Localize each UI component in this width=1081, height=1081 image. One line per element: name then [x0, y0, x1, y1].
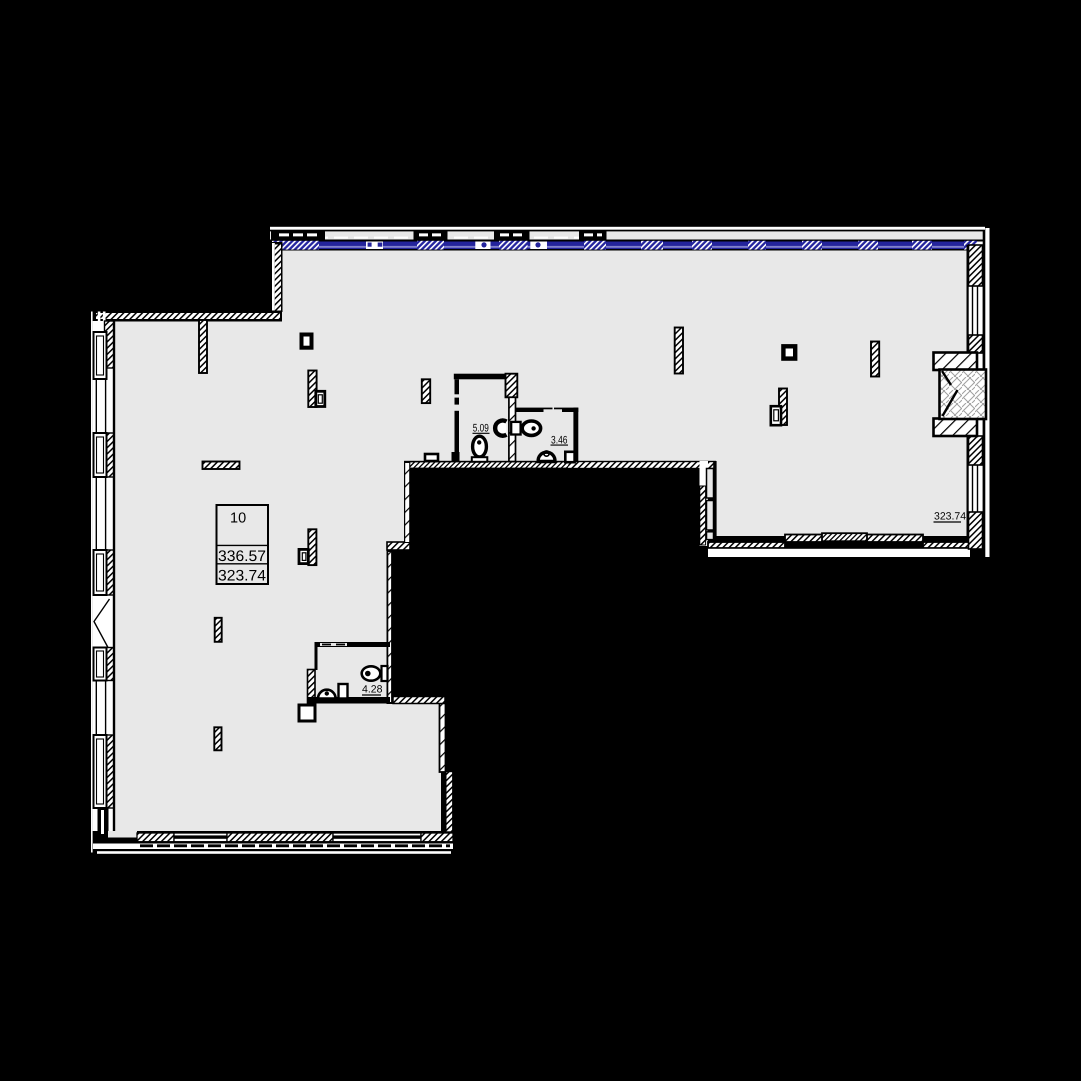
- svg-text:323.74: 323.74: [934, 511, 966, 523]
- svg-text:323.74: 323.74: [218, 567, 266, 584]
- svg-text:336.57: 336.57: [218, 548, 266, 565]
- svg-text:10: 10: [230, 511, 246, 527]
- svg-text:4.28: 4.28: [362, 684, 383, 696]
